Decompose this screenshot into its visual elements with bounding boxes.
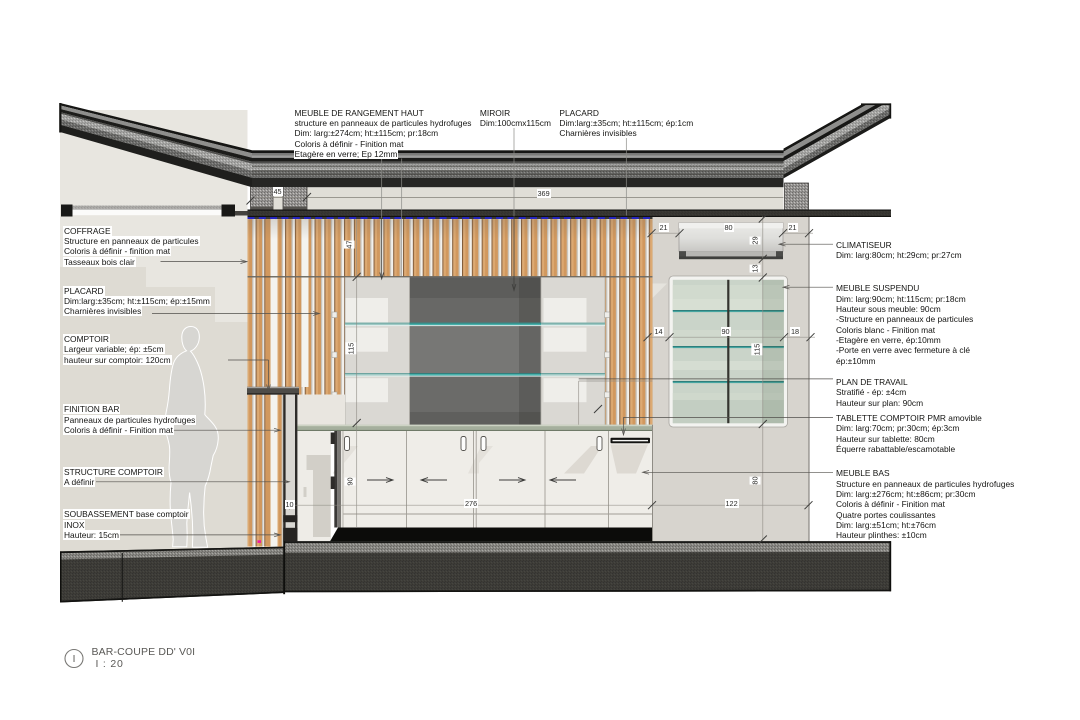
svg-text:I: I <box>73 654 76 665</box>
